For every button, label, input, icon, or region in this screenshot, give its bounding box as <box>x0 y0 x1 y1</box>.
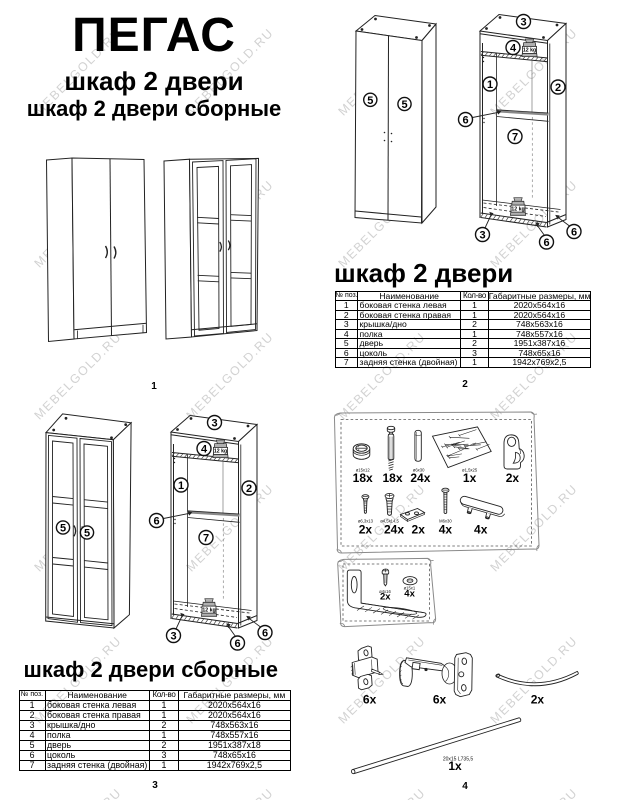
svg-text:2: 2 <box>555 82 561 94</box>
svg-text:18x: 18x <box>353 471 373 485</box>
svg-text:2: 2 <box>246 483 252 495</box>
svg-text:7: 7 <box>512 132 518 144</box>
svg-text:2x: 2x <box>412 523 426 537</box>
svg-text:6: 6 <box>543 237 549 249</box>
svg-text:24x: 24x <box>384 523 404 537</box>
svg-text:6x: 6x <box>363 693 377 707</box>
svg-text:6: 6 <box>571 227 577 239</box>
svg-text:12 kg: 12 kg <box>202 607 215 613</box>
svg-text:7: 7 <box>203 533 209 545</box>
svg-text:2x: 2x <box>506 471 520 485</box>
svg-text:4x: 4x <box>404 589 415 600</box>
svg-text:3: 3 <box>170 631 176 643</box>
svg-text:4x: 4x <box>474 523 488 537</box>
svg-text:4: 4 <box>510 43 517 55</box>
svg-text:1x: 1x <box>448 759 462 773</box>
svg-text:12 kg: 12 kg <box>214 449 227 455</box>
svg-text:5: 5 <box>60 523 66 535</box>
svg-text:6x: 6x <box>433 693 447 707</box>
svg-text:3: 3 <box>211 418 217 430</box>
svg-text:6: 6 <box>462 115 468 127</box>
svg-text:1x: 1x <box>463 471 477 485</box>
svg-text:4x: 4x <box>439 523 453 537</box>
svg-text:5: 5 <box>401 99 407 111</box>
svg-text:1: 1 <box>178 480 184 492</box>
svg-text:18x: 18x <box>382 471 402 485</box>
svg-text:4: 4 <box>201 444 208 456</box>
svg-text:2x: 2x <box>531 693 545 707</box>
svg-text:24x: 24x <box>410 471 430 485</box>
svg-text:1: 1 <box>487 79 493 91</box>
svg-text:6: 6 <box>234 638 240 650</box>
svg-text:2x: 2x <box>380 592 391 603</box>
svg-text:6: 6 <box>262 628 268 640</box>
svg-text:12 kg: 12 kg <box>523 48 536 54</box>
svg-text:5: 5 <box>84 528 90 540</box>
svg-text:5: 5 <box>367 95 373 107</box>
svg-text:12 kg: 12 kg <box>511 206 524 212</box>
svg-text:6: 6 <box>153 516 159 528</box>
svg-text:2x: 2x <box>359 523 373 537</box>
svg-text:3: 3 <box>479 230 485 242</box>
svg-text:3: 3 <box>520 17 526 29</box>
